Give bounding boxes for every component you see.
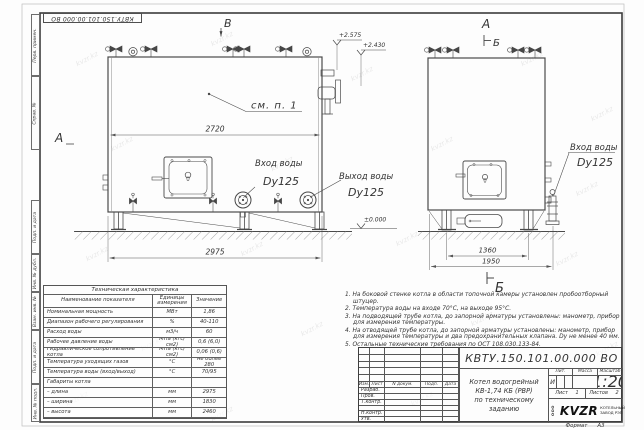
revision-cell — [359, 368, 370, 375]
revision-cell — [421, 348, 443, 355]
side-graph-label: Инв. № подл. — [33, 387, 38, 419]
drawing-sheet: kvzr.kzkvzr.kzkvzr.kzkvzr.kzkvzr.kzkvzr.… — [0, 0, 644, 430]
cell-name: Температура воды (вход/выход) — [44, 368, 153, 378]
cell-value: 40-110 — [192, 318, 226, 328]
side-graph-box: Справ. № — [31, 76, 40, 150]
cell-name: Номинальная мощность — [44, 308, 153, 318]
cell-value — [192, 378, 226, 388]
col-value-header: Значение — [192, 295, 226, 308]
tech-table-body: Номинальная мощностьМВт1,86Диапазон рабо… — [44, 308, 226, 418]
signer-label: Утв. — [359, 417, 385, 423]
outlet-dn-label: Dy125 — [348, 186, 384, 199]
revision-cell — [421, 375, 443, 382]
side-graph-label: Подп. и дата — [33, 211, 38, 242]
front-door — [456, 161, 506, 199]
revision-cell — [359, 362, 370, 369]
cell-value: не более 280 — [192, 358, 226, 368]
cell-units: % — [153, 318, 193, 328]
cell-units: °С — [153, 358, 193, 368]
dim-1360: 1360 — [479, 247, 497, 255]
inlet-label: Вход воды — [255, 159, 303, 169]
cell-name: Габариты котла — [44, 378, 153, 388]
cell-value: 1830 — [192, 398, 226, 408]
side-graph-label: Перв. примен. — [33, 28, 38, 63]
inlet2-label: Вход воды — [570, 143, 618, 153]
revision-cell — [370, 375, 385, 382]
sheet-label: Лист — [555, 390, 568, 396]
format-value: А3 — [597, 423, 604, 430]
cell-name: – ширина — [44, 398, 153, 408]
side-graph-label: Инв. № дубл. — [33, 257, 38, 288]
see-note-label: см. п. 1 — [251, 101, 298, 112]
side-graph-box: Перв. примен. — [31, 14, 40, 76]
cell-units: мм — [153, 408, 193, 418]
technical-notes: 1. На боковой стенке котла в области топ… — [345, 292, 622, 349]
cell-name: – длина — [44, 388, 153, 398]
drawing-name-line3: по техническому заданию — [460, 396, 548, 414]
side-graph-box: Подп. и дата — [31, 330, 40, 384]
rear-fitting — [318, 70, 341, 114]
drawing-name-line2: КВ-1,74 КБ (РВР) — [475, 387, 532, 396]
table-row: Рабочее давление водыМПа (кгс/см2)0,6 (6… — [44, 338, 226, 348]
cell-name: Гидравлическое сопротивление котла — [44, 348, 153, 358]
outlet-label: Выход воды — [339, 172, 393, 182]
drawing-name-line1: Котел водогрейный — [469, 378, 538, 387]
signer-cell — [421, 417, 443, 423]
side-graph-box: Инв. № подл. — [31, 384, 40, 422]
cell-name: Рабочее давление воды — [44, 338, 153, 348]
revision-cell — [385, 355, 421, 362]
side-graph-box: Подп. и дата — [31, 200, 40, 254]
revision-row — [359, 375, 459, 382]
cell-name: Расход воды — [44, 328, 153, 338]
title-block-left: Изм.ЛистN докум.Подп.Дата Разраб.Пров.Т.… — [359, 348, 459, 423]
cell-units: МПа (кгс/см2) — [153, 338, 193, 348]
revision-cell — [359, 355, 370, 362]
revision-row — [359, 348, 459, 355]
sheets-cell: Листов 2 — [586, 389, 623, 399]
note-line: 1. На боковой стенке котла в области топ… — [345, 292, 622, 306]
company-logo: KVZR — [560, 404, 598, 418]
dim-1950: 1950 — [482, 258, 500, 266]
revision-cell — [359, 348, 370, 355]
revision-cell — [370, 355, 385, 362]
cell-value: 2975 — [192, 388, 226, 398]
cell-units — [153, 378, 193, 388]
revision-row — [359, 355, 459, 362]
revision-cell — [385, 368, 421, 375]
revision-cell — [443, 348, 459, 355]
revision-cell — [385, 375, 421, 382]
inlet-nozzle — [235, 192, 251, 208]
cell-units: мм — [153, 398, 193, 408]
side-door — [152, 157, 212, 198]
cell-value: 1,86 — [192, 308, 226, 318]
cell-value: 0,6 (6,0) — [192, 338, 226, 348]
dim-2975: 2975 — [205, 248, 224, 257]
side-graph-box: Взам. инв. № — [31, 292, 40, 330]
lit-cell-3 — [565, 376, 573, 389]
title-block: Изм.ЛистN докум.Подп.Дата Разраб.Пров.Т.… — [358, 347, 622, 422]
tech-table-title: Техническая характеристика — [44, 286, 226, 295]
table-row: Диапазон рабочего регулирования%40-110 — [44, 318, 226, 328]
cell-name: – высота — [44, 408, 153, 418]
drawing-designation: КВТУ.150.101.00.000 ВО — [460, 348, 623, 369]
boiler-front-view — [418, 47, 565, 240]
table-row: – высотамм2460 — [44, 408, 226, 418]
cell-name: Диапазон рабочего регулирования — [44, 318, 153, 328]
view-label-a-left: А — [54, 131, 63, 145]
cell-units: м3/ч — [153, 328, 193, 338]
signer-cell — [385, 417, 421, 423]
signer-row: Утв. — [359, 417, 459, 423]
outlet-nozzle — [300, 192, 316, 208]
view-marks — [66, 28, 615, 284]
inlet-dn-label: Dy125 — [263, 175, 299, 188]
front-supports — [429, 210, 544, 230]
cell-units: МПа (кгс/см2) — [153, 348, 193, 358]
signer-rows: Разраб.Пров.Т.контр.Н.контр.Утв. — [359, 388, 459, 423]
cell-name: Температура уходящих газов — [44, 358, 153, 368]
table-row: Температура воды (вход/выход)°С70/95 — [44, 368, 226, 378]
revision-cell — [421, 368, 443, 375]
cell-units: МВт — [153, 308, 193, 318]
table-row: Гидравлическое сопротивление котлаМПа (к… — [44, 348, 226, 358]
table-row: – ширинамм1830 — [44, 398, 226, 408]
view-label-a-right: А — [481, 17, 490, 31]
elev-ground: ±0.000 — [364, 217, 386, 224]
table-row: – длинамм2975 — [44, 388, 226, 398]
revision-cell — [443, 362, 459, 369]
note-line: 4. На отводящей трубе котла, до запорной… — [345, 328, 622, 342]
revision-cell — [370, 368, 385, 375]
title-block-right: КВТУ.150.101.00.000 ВО Котел водогрейный… — [459, 348, 623, 423]
drawing-name: Котел водогрейный КВ-1,74 КБ (РВР) по те… — [460, 369, 549, 423]
side-supports — [111, 212, 327, 230]
company-name: КОТЕЛЬНЫЙ ЗАВОД РЭП — [600, 406, 625, 415]
format-label-row: Формат А3 — [548, 423, 622, 430]
signer-cell — [443, 417, 459, 423]
revision-cell — [443, 375, 459, 382]
revision-cell — [359, 375, 370, 382]
cell-value: 70/95 — [192, 368, 226, 378]
burner — [457, 215, 502, 228]
scale-value: 1:20 — [598, 376, 623, 389]
revision-cell — [443, 368, 459, 375]
revision-cell — [421, 362, 443, 369]
table-row: Температура уходящих газов°Сне более 280 — [44, 358, 226, 368]
mass-value — [573, 376, 598, 389]
side-graph-label: Подп. и дата — [33, 341, 38, 372]
note-line: 2. Температура воды на входе 70°С, на вы… — [345, 306, 622, 313]
col-name-header: Наименование показателя — [44, 295, 153, 308]
table-row: Габариты котла — [44, 378, 226, 388]
lit-value: И — [549, 376, 557, 389]
sheet-cell: Лист 1 — [549, 389, 586, 399]
view-label-b-right: Б — [493, 38, 500, 49]
format-label: Формат — [566, 423, 588, 430]
sheets-label: Листов — [589, 390, 608, 396]
inlet2-dn-label: Dy125 — [577, 156, 613, 169]
revision-row — [359, 368, 459, 375]
col-units-header: Единицы измерения — [153, 295, 193, 308]
side-graph-label: Справ. № — [33, 102, 38, 124]
revision-grid — [359, 348, 459, 382]
cell-units: °С — [153, 368, 193, 378]
company-name-line2: ЗАВОД РЭП — [600, 410, 623, 415]
revision-cell — [370, 362, 385, 369]
company-logo-cell: ООО KVZR КОТЕЛЬНЫЙ ЗАВОД РЭП — [549, 399, 623, 424]
side-graph-box: Инв. № дубл. — [31, 254, 40, 292]
revision-cell — [385, 362, 421, 369]
boiler-side-view — [74, 46, 352, 240]
lit-cell-2 — [557, 376, 565, 389]
revision-cell — [443, 355, 459, 362]
revision-row — [359, 362, 459, 369]
cell-value: 2460 — [192, 408, 226, 418]
revision-cell — [421, 355, 443, 362]
elev-2575: +2.575 — [339, 32, 361, 39]
inlet-valve-assembly — [545, 190, 559, 225]
top-stamp: КВТУ.150.101.00.000 ВО — [43, 13, 142, 23]
sheets-value: 2 — [616, 390, 619, 396]
top-stamp-text: КВТУ.150.101.00.000 ВО — [51, 15, 134, 22]
cell-units: мм — [153, 388, 193, 398]
table-row: Номинальная мощностьМВт1,86 — [44, 308, 226, 318]
dim-2720: 2720 — [205, 125, 224, 134]
tech-table-header: Наименование показателя Единицы измерени… — [44, 295, 226, 308]
company-prefix: ООО — [550, 405, 555, 416]
cell-value: 60 — [192, 328, 226, 338]
view-label-b-top: В — [224, 17, 232, 30]
table-row: Расход водым3/ч60 — [44, 328, 226, 338]
note-line: 3. На подводящей трубе котла, до запорно… — [345, 314, 622, 328]
revision-cell — [385, 348, 421, 355]
sheet-value: 1 — [576, 390, 579, 396]
revision-cell — [370, 348, 385, 355]
tech-table: Техническая характеристика Наименование … — [43, 285, 227, 419]
cell-value: 0,06 (0,6) — [192, 348, 226, 358]
side-graph-label: Взам. инв. № — [33, 295, 38, 326]
elev-2430: +2.430 — [363, 42, 385, 49]
